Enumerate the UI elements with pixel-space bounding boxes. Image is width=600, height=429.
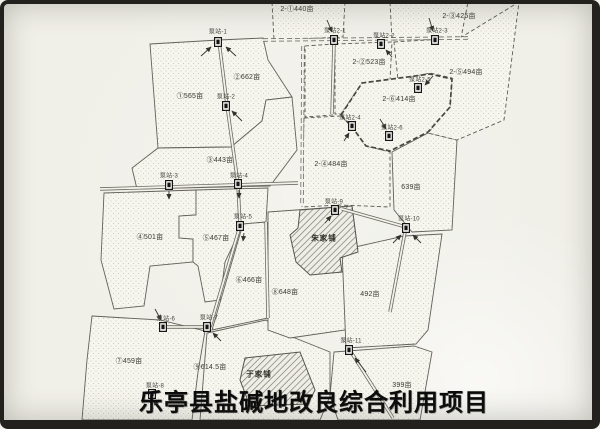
parcel-area-label: 2-②523亩 xyxy=(352,57,385,67)
pump-station-icon xyxy=(349,122,356,131)
parcel-area-label: 2-⑤494亩 xyxy=(449,67,482,77)
parcel-area-label: ③443亩 xyxy=(207,155,234,165)
map-canvas xyxy=(0,0,600,429)
parcel-area-label: ⑨614.5亩 xyxy=(194,362,227,372)
parcel-area-label: ②662亩 xyxy=(234,72,261,82)
pump-station-label: 泵站2-5 xyxy=(409,75,431,84)
parcel-area-label: ④501亩 xyxy=(137,232,164,242)
parcel-area-label: 2-①440亩 xyxy=(280,4,313,14)
pump-station-icon xyxy=(432,36,439,45)
pump-station-icon xyxy=(386,132,393,141)
pump-station-label: 泵站-9 xyxy=(325,197,343,206)
pump-station-label: 泵站-11 xyxy=(340,336,361,345)
pump-station-icon xyxy=(415,84,422,93)
pump-station-label: 泵站-4 xyxy=(230,171,248,180)
parcel-area-label: 2-③425亩 xyxy=(442,11,475,21)
pump-station-label: 泵站-1 xyxy=(209,27,227,36)
pump-station-icon xyxy=(235,180,242,189)
pump-station-label: 泵站2-2 xyxy=(373,31,395,40)
parcel-area-label: ①565亩 xyxy=(177,91,204,101)
pump-station-icon xyxy=(378,40,385,49)
pump-station-icon xyxy=(331,36,338,45)
pump-station-label: 泵站2-4 xyxy=(339,113,361,122)
parcel-area-label: 2-④484亩 xyxy=(314,159,347,169)
pump-station-label: 泵站-10 xyxy=(398,214,420,223)
parcel-area-label: ⑤467亩 xyxy=(203,233,230,243)
pump-station-label: 泵站-3 xyxy=(160,171,178,180)
pump-station-icon xyxy=(346,346,353,355)
parcel-area-label: ⑦459亩 xyxy=(116,356,143,366)
parcel-area-label: 639亩 xyxy=(401,182,420,192)
pump-station-label: 泵站-2 xyxy=(217,92,235,101)
pump-station-icon xyxy=(160,323,167,332)
pump-station-label: 泵站-7 xyxy=(200,313,218,322)
pump-station-icon xyxy=(223,102,230,111)
pump-station-icon xyxy=(332,206,339,215)
project-title: 乐亭县盐碱地改良综合利用项目 xyxy=(139,383,489,418)
parcel-area-label: 2-⑥414亩 xyxy=(382,94,415,104)
village-label: 朱家铺 xyxy=(311,233,337,244)
village-label: 于家铺 xyxy=(246,369,272,380)
parcel-area-label: ⑥466亩 xyxy=(236,275,263,285)
pump-station-label: 泵站2-1 xyxy=(324,26,346,35)
map-photo: ①565亩 ②662亩 ③443亩 ④501亩 ⑤467亩 ⑥466亩 ⑦459… xyxy=(0,0,600,429)
pump-station-icon xyxy=(215,38,222,47)
pump-station-label: 泵站-5 xyxy=(234,212,252,221)
pump-station-label: 泵站2-6 xyxy=(381,123,403,132)
pump-station-icon xyxy=(166,181,173,190)
pump-station-label: 泵站2-3 xyxy=(426,26,448,35)
pump-station-icon xyxy=(237,222,244,231)
pump-station-label: 泵站-6 xyxy=(157,314,175,323)
pump-station-icon xyxy=(204,323,211,332)
parcel-area-label: ⑧648亩 xyxy=(272,287,299,297)
parcel-area-label: 492亩 xyxy=(360,289,379,299)
pump-station-icon xyxy=(403,224,410,233)
